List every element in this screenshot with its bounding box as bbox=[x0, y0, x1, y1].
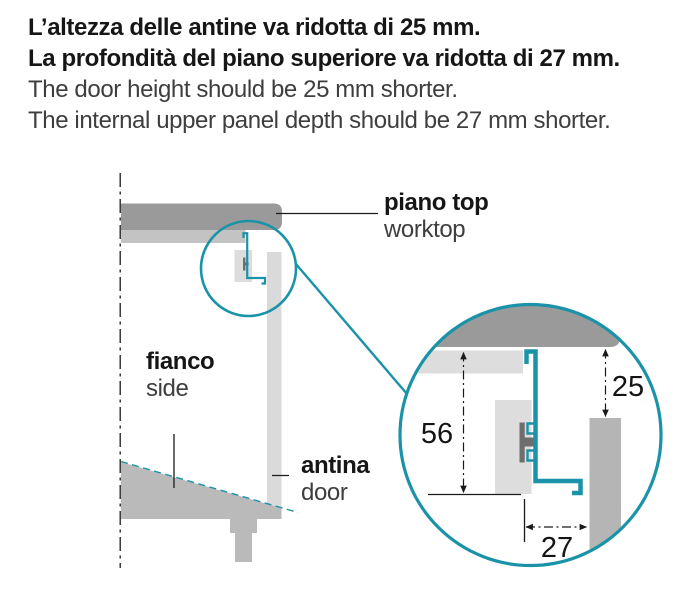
edge-profile-small bbox=[244, 233, 266, 283]
cabinet-section-diagram: 56 25 27 piano top worktop fianco side a… bbox=[0, 0, 686, 603]
door-label-en: door bbox=[301, 479, 348, 506]
worktop-label-it: piano top bbox=[384, 189, 488, 216]
side-label-it: fianco bbox=[146, 348, 214, 375]
upper-internal-panel bbox=[121, 230, 246, 243]
upper-panel-magnified bbox=[392, 351, 523, 374]
side-panel-magnified bbox=[495, 400, 532, 494]
magnifier-leader-line bbox=[296, 264, 408, 395]
worktop-slab-magnified bbox=[392, 295, 620, 347]
dimension-56-label: 56 bbox=[421, 418, 453, 450]
door-label-it: antina bbox=[301, 452, 370, 479]
plinth-wedge bbox=[121, 462, 282, 519]
dimension-25-label: 25 bbox=[612, 371, 644, 403]
door-panel bbox=[267, 252, 282, 519]
dimension-27-label: 27 bbox=[541, 532, 573, 564]
edge-profile-magnified bbox=[527, 352, 581, 494]
worktop-slab bbox=[121, 204, 282, 231]
worktop-label-en: worktop bbox=[383, 216, 465, 243]
instruction-page: L’altezza delle antine va ridotta di 25 … bbox=[0, 0, 686, 603]
side-label-en: side bbox=[146, 375, 188, 402]
cabinet-foot bbox=[230, 519, 257, 562]
